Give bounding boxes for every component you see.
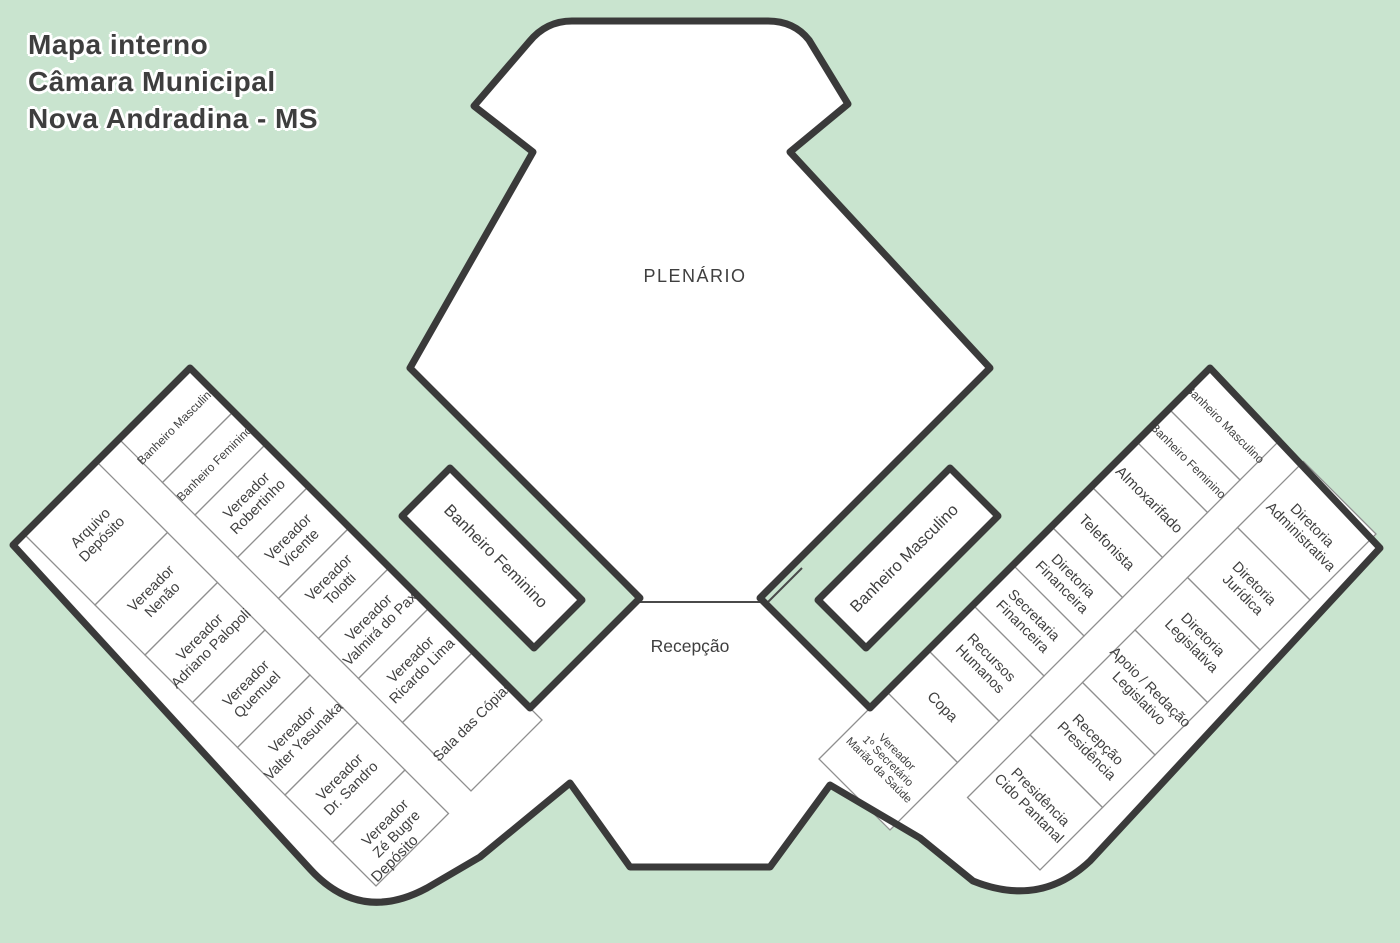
map-title: Mapa interno Câmara Municipal Nova Andra… xyxy=(28,26,318,137)
map-title-line3: Nova Andradina - MS xyxy=(28,100,318,137)
recepcao-label: Recepção xyxy=(651,636,730,656)
plenario-label: PLENÁRIO xyxy=(643,266,746,286)
floor-plan-map: Banheiro MasculinoBanheiro FemininoVerea… xyxy=(0,0,1400,943)
map-title-line2: Câmara Municipal xyxy=(28,63,318,100)
map-title-line1: Mapa interno xyxy=(28,26,318,63)
